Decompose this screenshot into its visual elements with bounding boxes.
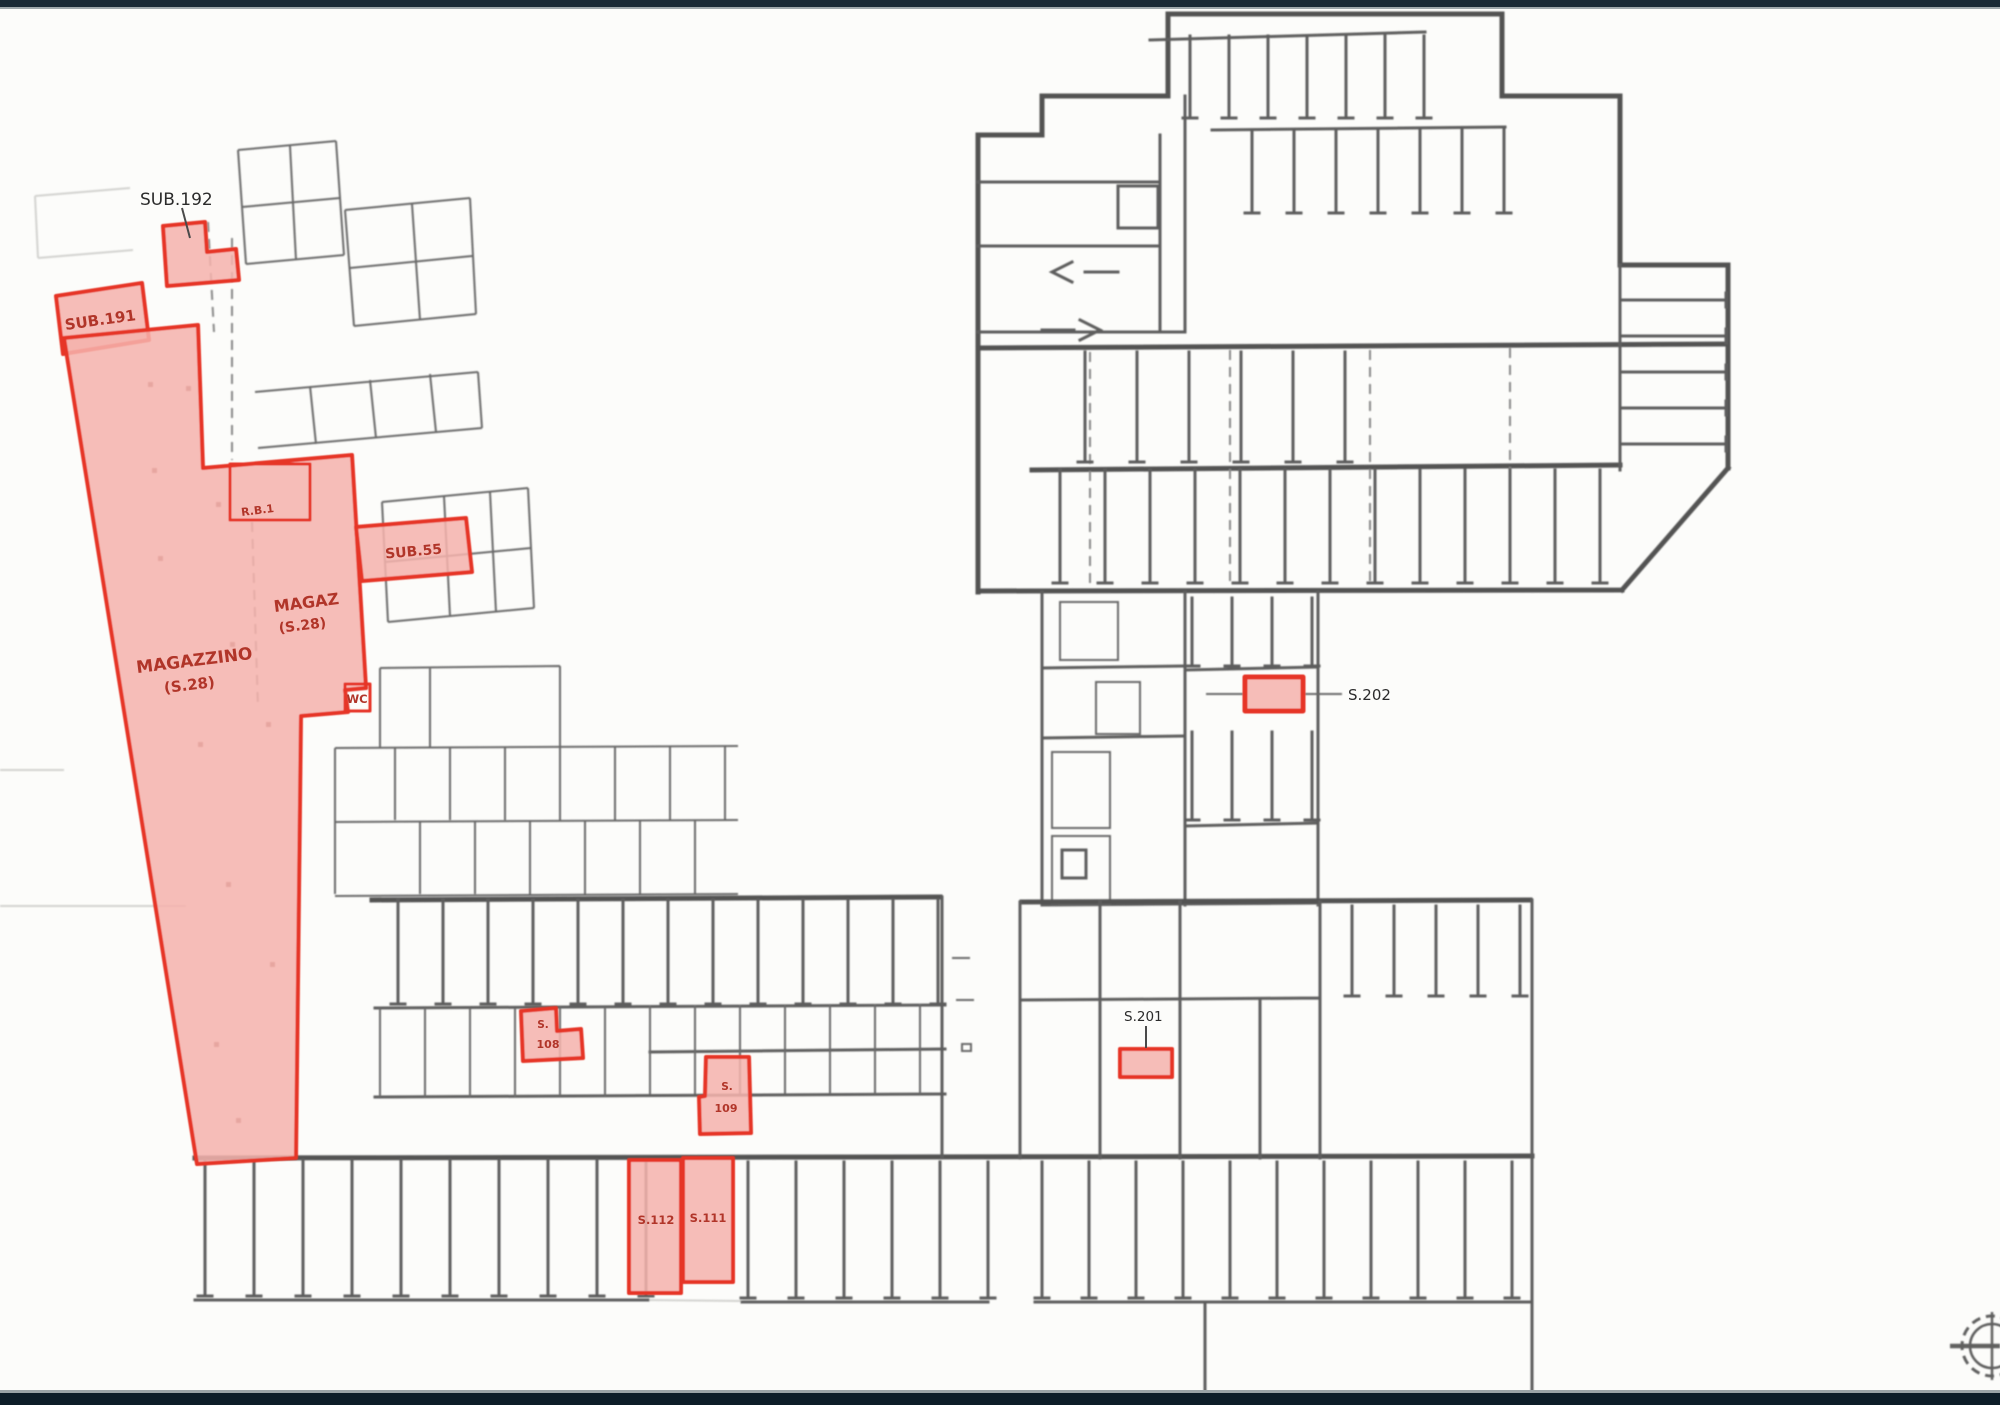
unit-s111-label: S.111	[690, 1211, 727, 1225]
unit-s108-label-line2: 108	[537, 1038, 560, 1051]
mid-block-walls	[1042, 592, 1318, 905]
unit-s112-label: S.112	[638, 1213, 675, 1227]
unit-s109-highlight	[699, 1057, 751, 1134]
unit-sub192-highlight	[163, 222, 239, 286]
unit-s201-label: S.201	[1124, 1009, 1163, 1025]
unit-s108-label-line1: S.	[537, 1019, 549, 1031]
unit-sub192-label: SUB.192	[140, 190, 213, 210]
unit-s108-highlight	[521, 1008, 583, 1061]
bottom-strip-inner	[195, 897, 1532, 1392]
garage-arrows	[1042, 262, 1118, 340]
unit-s202-label: S.202	[1348, 686, 1391, 704]
parking-stalls-hall-lower	[1053, 470, 1607, 583]
unit-s202-highlight	[1245, 677, 1303, 711]
parking-stalls-hall-upper	[1078, 352, 1352, 462]
parking-stalls-right-wing	[1622, 293, 1726, 451]
highlight-layer	[56, 222, 1303, 1293]
floor-plan-page: SUB.192 S.202 S.201 SUB.191 MAGAZZINO (S…	[0, 0, 2000, 1405]
floor-plan-drawing: SUB.192 S.202 S.201 SUB.191 MAGAZZINO (S…	[0, 0, 2000, 1405]
top-border	[0, 0, 2000, 9]
lower-left-rooms	[335, 666, 738, 896]
parking-stalls-top-row2	[1245, 130, 1511, 213]
parking-stalls-bottom-mid	[741, 1162, 995, 1298]
parking-stalls-bottom-upper	[391, 900, 945, 1004]
unit-s109-label-line1: S.	[721, 1081, 733, 1093]
bottom-strip-walls	[195, 897, 1532, 1158]
parking-stalls-mid-lower	[1185, 732, 1319, 820]
north-indicator-icon	[1950, 1312, 2000, 1380]
parking-stalls-top-row1	[1183, 36, 1431, 118]
unit-s109-label-line2: 109	[715, 1102, 738, 1115]
unit-wc-label: WC	[346, 692, 367, 706]
parking-stalls-right-rooms	[1345, 906, 1527, 996]
bottom-room-dividers	[380, 958, 974, 1097]
bottom-border	[0, 1390, 2000, 1405]
parking-stalls-bottom-left	[198, 1160, 653, 1296]
unit-s201-highlight	[1120, 1049, 1172, 1077]
parking-stalls-mid-top	[1185, 598, 1319, 666]
unit-magazzino-highlight	[64, 325, 366, 1164]
parking-stalls-bottom-right	[1035, 1162, 1519, 1298]
